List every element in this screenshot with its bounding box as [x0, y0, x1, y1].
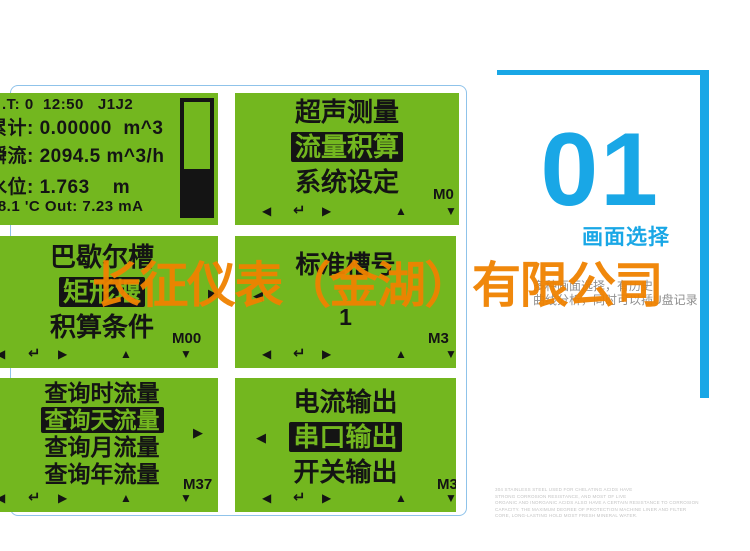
nav-down-icon: ▼: [180, 491, 192, 505]
menu-item-selected: 串口输出: [289, 422, 401, 452]
lcd-screen-main-display: .T: 0 12:50 J1J2 累计: 0.00000 m^3 瞬流: 209…: [0, 93, 218, 225]
level-bargraph: [180, 98, 214, 218]
nav-enter-icon: ↵: [28, 344, 41, 362]
nav-down-icon: ▼: [180, 347, 192, 361]
nav-left-icon: ◀: [262, 491, 271, 505]
lcd-screen-output-menu: 电流输出 串口输出 开关输出 M3 ◀ ◀ ↵ ▶ ▲ ▼: [235, 378, 456, 512]
total-line: 累计: 0.00000 m^3: [0, 113, 163, 140]
section-number: 01: [530, 118, 660, 222]
nav-right-icon: ▶: [58, 347, 67, 361]
menu-code: M3: [428, 330, 449, 347]
menu-item: 系统设定: [295, 167, 399, 197]
menu-item: 查询月流量: [45, 434, 160, 460]
nav-down-icon: ▼: [445, 491, 456, 505]
lcd-nav-row: ◀ ↵ ▶ ▲ ▼: [0, 347, 218, 363]
nav-enter-icon: ↵: [28, 488, 41, 506]
menu-item: 超声测量: [295, 97, 399, 127]
menu-code: M00: [172, 330, 201, 347]
nav-left-icon: ◀: [0, 491, 5, 505]
nav-enter-icon: ↵: [293, 344, 306, 362]
fine-print: 304 STAINLESS STEEL USED FOR CHELATING A…: [495, 487, 710, 520]
nav-down-icon: ▼: [445, 347, 456, 361]
lcd-screen-main-menu: 超声测量 流量积算 系统设定 M0 ◀ ↵ ▶ ▲ ▼: [235, 93, 459, 225]
lcd-nav-row: ◀ ↵ ▶ ▲ ▼: [235, 204, 459, 220]
nav-down-icon: ▼: [445, 204, 457, 218]
more-left-icon: ◀: [256, 430, 266, 446]
status-line: .T: 0 12:50 J1J2: [2, 96, 133, 113]
nav-enter-icon: ↵: [293, 201, 306, 219]
more-right-icon: ▶: [193, 425, 203, 441]
nav-up-icon: ▲: [395, 347, 407, 361]
nav-right-icon: ▶: [322, 204, 331, 218]
nav-right-icon: ▶: [58, 491, 67, 505]
fine-print-line: CORE, LONG-LASTING HOLD MOST FRESH MINER…: [495, 513, 710, 520]
nav-up-icon: ▲: [395, 491, 407, 505]
nav-up-icon: ▲: [120, 491, 132, 505]
menu-item: 查询时流量: [45, 380, 160, 406]
menu-code: M0: [433, 186, 454, 203]
nav-left-icon: ◀: [0, 347, 5, 361]
accent-line-vertical: [700, 70, 709, 398]
menu-item-selected: 流量积算: [291, 132, 403, 162]
level-bargraph-fill: [184, 169, 210, 214]
menu-item-selected: 查询天流量: [41, 407, 164, 433]
lcd-nav-row: ◀ ↵ ▶ ▲ ▼: [0, 491, 218, 507]
lcd-nav-row: ◀ ↵ ▶ ▲ ▼: [235, 347, 456, 363]
nav-left-icon: ◀: [262, 204, 271, 218]
menu-item: 查询年流量: [45, 461, 160, 487]
nav-up-icon: ▲: [120, 347, 132, 361]
accent-line-horizontal: [497, 70, 703, 75]
nav-right-icon: ▶: [322, 347, 331, 361]
flow-line: 瞬流: 2094.5 m^3/h: [0, 141, 164, 168]
fine-print-line: ORGANIC AND INORGANIC ACIDS ALSO HAVE A …: [495, 500, 710, 507]
nav-left-icon: ◀: [262, 347, 271, 361]
nav-enter-icon: ↵: [293, 488, 306, 506]
product-page: .T: 0 12:50 J1J2 累计: 0.00000 m^3 瞬流: 209…: [0, 0, 750, 551]
menu-item: 电流输出: [293, 387, 397, 417]
nav-right-icon: ▶: [322, 491, 331, 505]
company-watermark: 长征仪表（金湖）有限公司: [92, 246, 662, 317]
temp-output-line: 18.1 'C Out: 7.23 mA: [0, 198, 143, 215]
lcd-nav-row: ◀ ↵ ▶ ▲ ▼: [235, 491, 456, 507]
level-line: 水位: 1.763 m: [0, 172, 130, 199]
lcd-screen-query-menu: 查询时流量 查询天流量 查询月流量 查询年流量 M37 ▶ ◀ ↵ ▶ ▲ ▼: [0, 378, 218, 512]
nav-up-icon: ▲: [395, 204, 407, 218]
menu-item: 开关输出: [293, 457, 397, 487]
